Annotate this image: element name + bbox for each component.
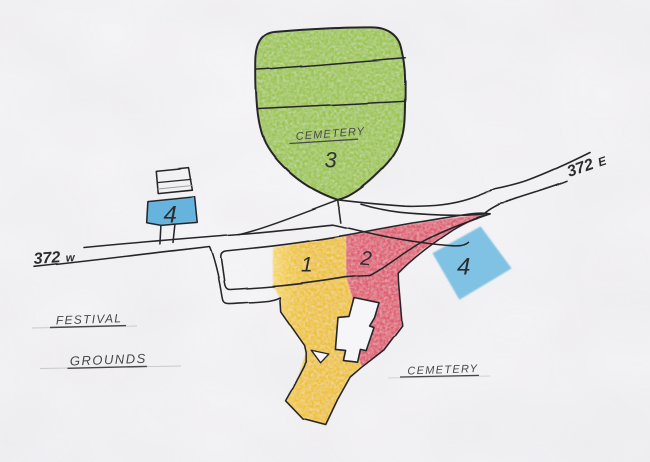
svg-text:1: 1 [301,254,313,277]
svg-text:3: 3 [325,148,338,173]
svg-text:2: 2 [359,247,373,270]
svg-text:GROUNDS: GROUNDS [70,351,147,369]
svg-text:4: 4 [457,254,470,281]
svg-text:FESTIVAL: FESTIVAL [56,311,123,327]
svg-text:4: 4 [164,202,177,229]
